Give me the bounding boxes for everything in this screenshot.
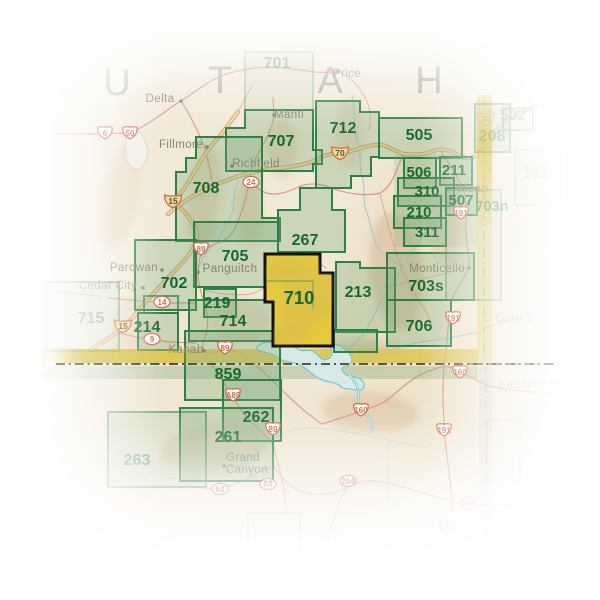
svg-text:859: 859 — [215, 366, 242, 383]
svg-text:Fillmore: Fillmore — [159, 139, 203, 151]
svg-text:89: 89 — [221, 344, 230, 353]
svg-text:213: 213 — [345, 284, 372, 301]
svg-text:15: 15 — [168, 196, 178, 206]
svg-text:267: 267 — [292, 232, 319, 249]
svg-text:24: 24 — [247, 178, 256, 187]
svg-text:89: 89 — [197, 245, 206, 254]
svg-text:Richfield: Richfield — [232, 158, 280, 170]
svg-text:A89: A89 — [226, 391, 241, 400]
svg-text:710: 710 — [284, 287, 315, 308]
svg-text:714: 714 — [220, 313, 247, 330]
svg-text:Panguitch: Panguitch — [203, 263, 258, 275]
svg-text:219: 219 — [204, 295, 231, 312]
svg-text:708: 708 — [193, 180, 220, 197]
svg-text:70: 70 — [335, 148, 345, 158]
svg-text:707: 707 — [268, 133, 295, 150]
